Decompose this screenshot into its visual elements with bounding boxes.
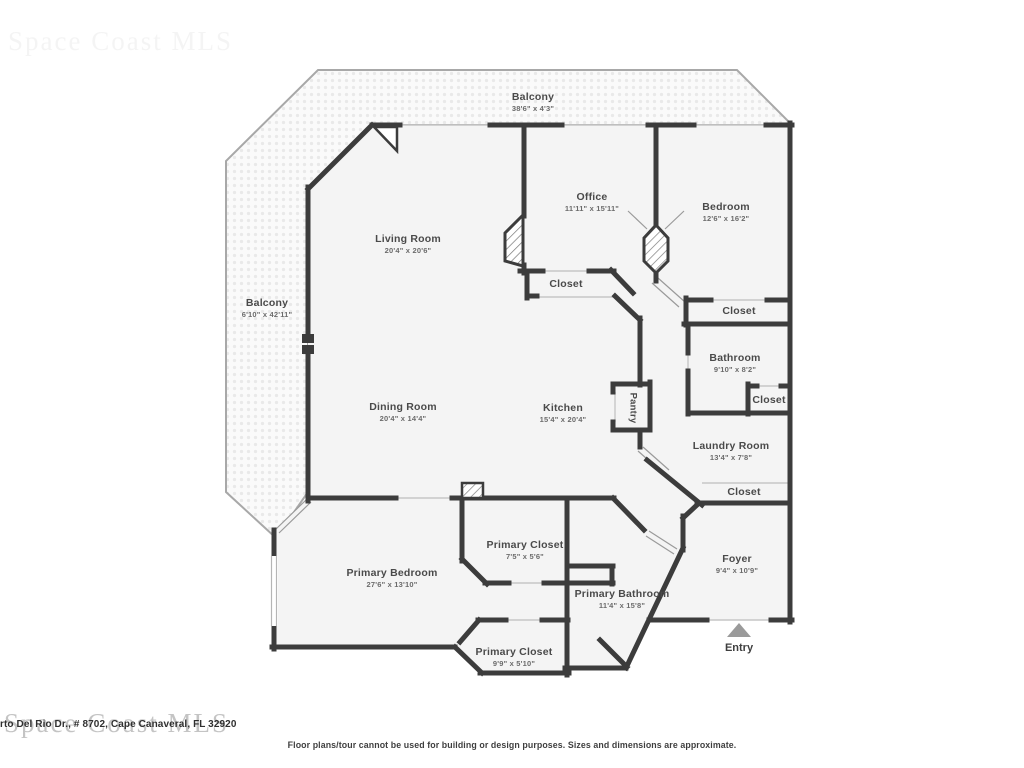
entry-arrow-icon: [727, 623, 751, 637]
column-square: [462, 483, 483, 498]
floor-plan-svg: [0, 0, 1024, 768]
floor-plan-page: Space Coast MLS Space Coast MLS: [0, 0, 1024, 768]
primary-bedroom-window: [270, 556, 278, 626]
unit-floor: [274, 125, 790, 673]
entry-label: Entry: [725, 642, 753, 654]
disclaimer-text: Floor plans/tour cannot be used for buil…: [0, 740, 1024, 750]
property-address: rto Del Rio Dr., # 8702, Cape Canaveral,…: [0, 719, 237, 730]
column-hexagon: [644, 225, 668, 273]
